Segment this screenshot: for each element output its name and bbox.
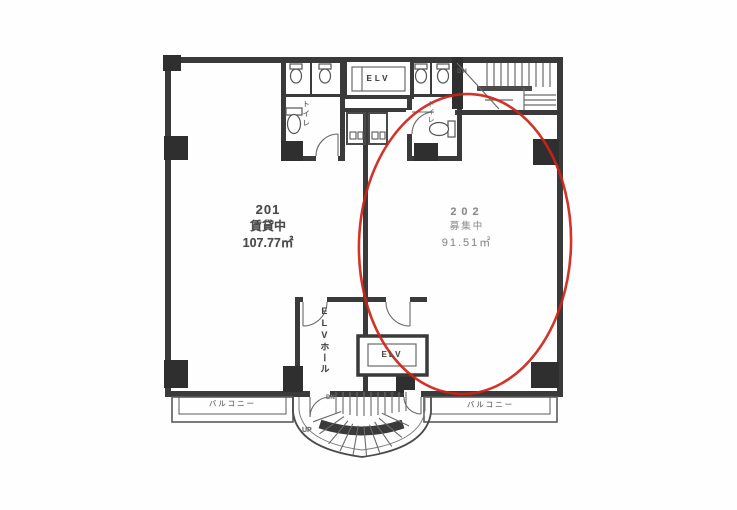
unit-202-label: 202 募集中 91.51㎡ <box>407 206 527 249</box>
stairs-up-bottom-label: UP <box>302 427 312 435</box>
elevator-top-label: ELV <box>345 60 412 97</box>
elevator-hall-label: ELVホール <box>319 306 329 386</box>
unit-202-area: 91.51㎡ <box>407 237 527 250</box>
unit-201-label: 201 賃貸中 107.77㎡ <box>208 203 328 250</box>
unit-202-number: 202 <box>407 206 527 219</box>
unit-201-number: 201 <box>208 203 328 218</box>
toilet-right-label: トイレ <box>426 100 434 152</box>
unit-202-status: 募集中 <box>407 222 527 233</box>
fan-staircase <box>293 392 431 457</box>
stairs-down-top-label: DN <box>457 69 468 76</box>
toilet-left-label: トイレ <box>301 100 310 156</box>
unit-201-status: 賃貸中 <box>208 220 328 234</box>
stairs-down-bottom-label: DN <box>326 395 335 402</box>
floorplan: 201 賃貸中 107.77㎡ 202 募集中 91.51㎡ ELV ELV ト… <box>0 0 737 510</box>
balcony-left-label: バルコニー <box>172 400 293 409</box>
unit-201-area: 107.77㎡ <box>208 236 328 250</box>
stairwell-top <box>457 63 556 110</box>
elevator-bottom-label: ELV <box>368 344 416 366</box>
balcony-right-label: バルコニー <box>424 401 557 410</box>
